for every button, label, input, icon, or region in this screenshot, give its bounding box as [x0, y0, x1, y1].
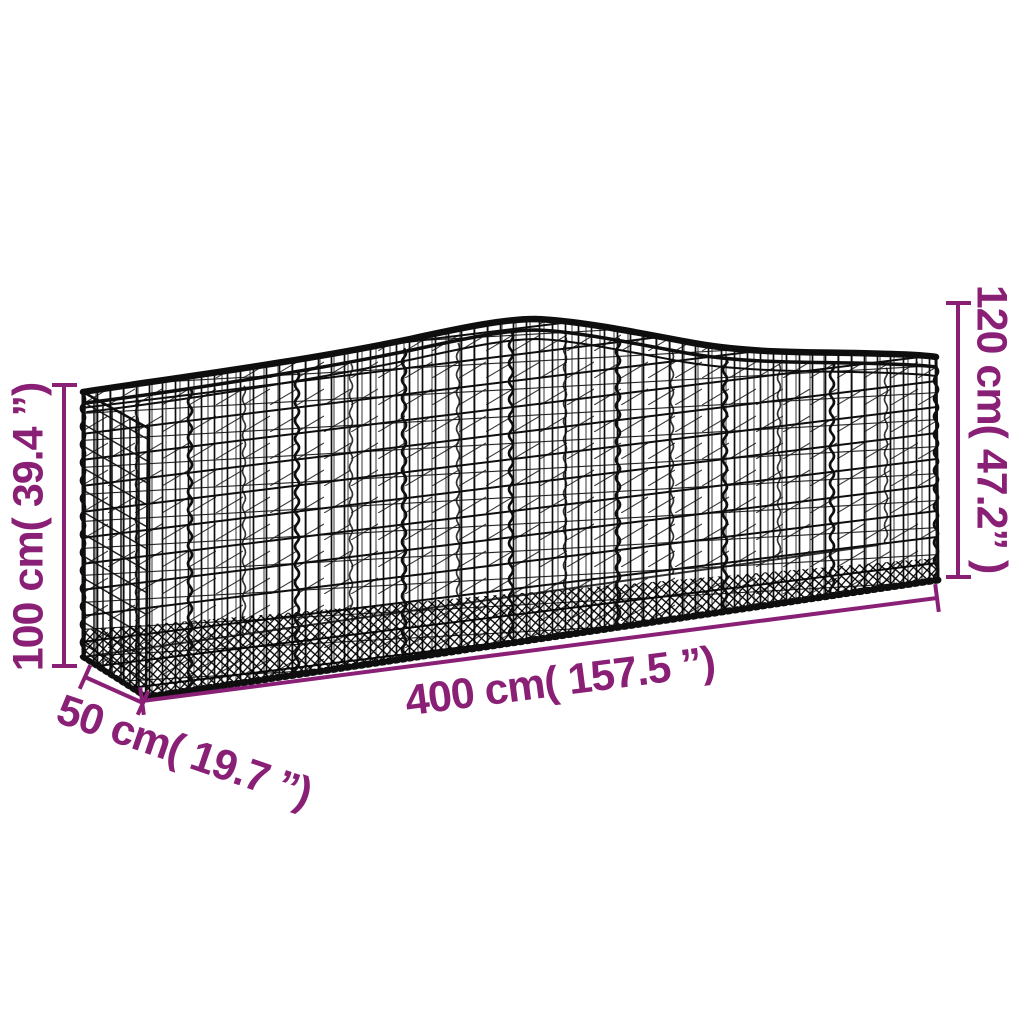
dimension-line-height-left	[52, 385, 77, 666]
dimension-label-height-left: 100 cm( 39.4 ”)	[5, 383, 54, 672]
page: { "diagram": { "background_color": "#fff…	[0, 0, 1024, 1024]
dimension-label-height-right: 120 cm( 47.2” )	[967, 285, 1016, 574]
gabion-basket-illustration	[0, 0, 1024, 1024]
gabion-dimension-diagram: 100 cm( 39.4 ”) 120 cm( 47.2” ) 400 cm( …	[0, 0, 1024, 1024]
basket-mesh	[81, 319, 938, 697]
